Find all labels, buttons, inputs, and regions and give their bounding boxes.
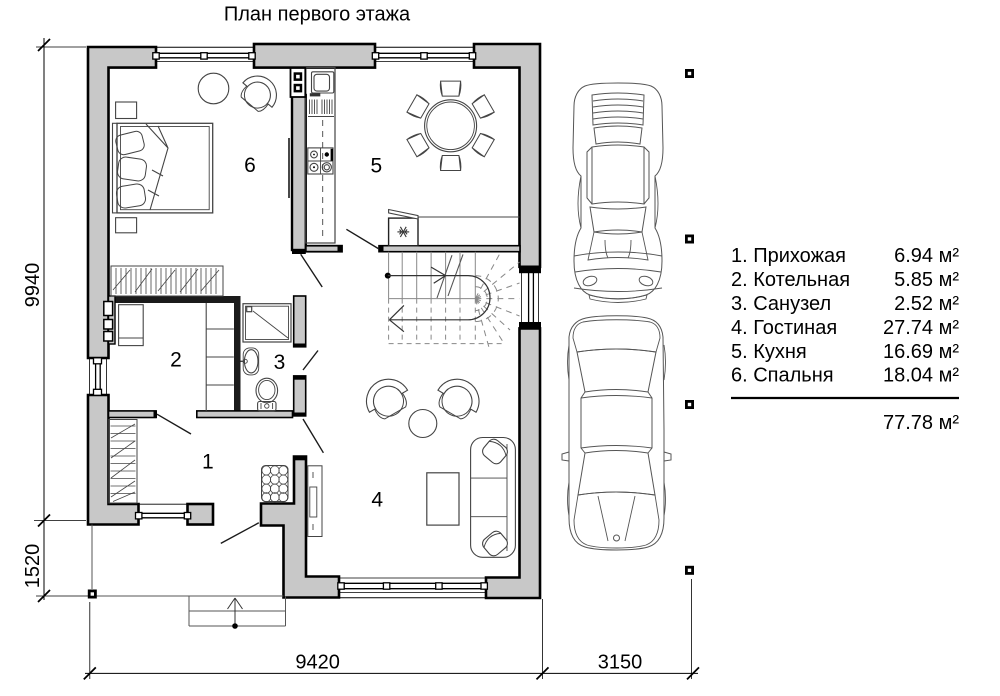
- svg-text:6. Спальня: 6. Спальня: [731, 365, 834, 387]
- svg-text:6: 6: [244, 154, 256, 177]
- svg-text:77.78 м²: 77.78 м²: [883, 412, 959, 434]
- svg-text:27.74 м²: 27.74 м²: [883, 317, 959, 339]
- svg-text:16.69 м²: 16.69 м²: [883, 341, 959, 363]
- svg-text:18.04 м²: 18.04 м²: [883, 365, 959, 387]
- svg-text:5.85 м²: 5.85 м²: [894, 269, 959, 291]
- svg-text:6.94 м²: 6.94 м²: [894, 245, 959, 267]
- svg-text:2.52 м²: 2.52 м²: [894, 293, 959, 315]
- svg-text:3150: 3150: [598, 652, 643, 674]
- svg-text:1520: 1520: [22, 544, 44, 589]
- svg-text:4. Гостиная: 4. Гостиная: [731, 317, 837, 339]
- svg-text:1: 1: [202, 451, 214, 474]
- svg-text:5. Кухня: 5. Кухня: [731, 341, 807, 363]
- svg-text:5: 5: [371, 155, 383, 178]
- svg-text:2. Котельная: 2. Котельная: [731, 269, 850, 291]
- svg-text:3. Санузел: 3. Санузел: [731, 293, 831, 315]
- svg-text:9420: 9420: [295, 652, 340, 674]
- svg-text:4: 4: [371, 489, 383, 512]
- svg-text:9940: 9940: [22, 263, 44, 308]
- svg-text:2: 2: [170, 349, 182, 372]
- svg-text:3: 3: [274, 351, 286, 374]
- svg-text:1. Прихожая: 1. Прихожая: [731, 245, 846, 267]
- svg-text:План первого этажа: План первого этажа: [224, 4, 411, 26]
